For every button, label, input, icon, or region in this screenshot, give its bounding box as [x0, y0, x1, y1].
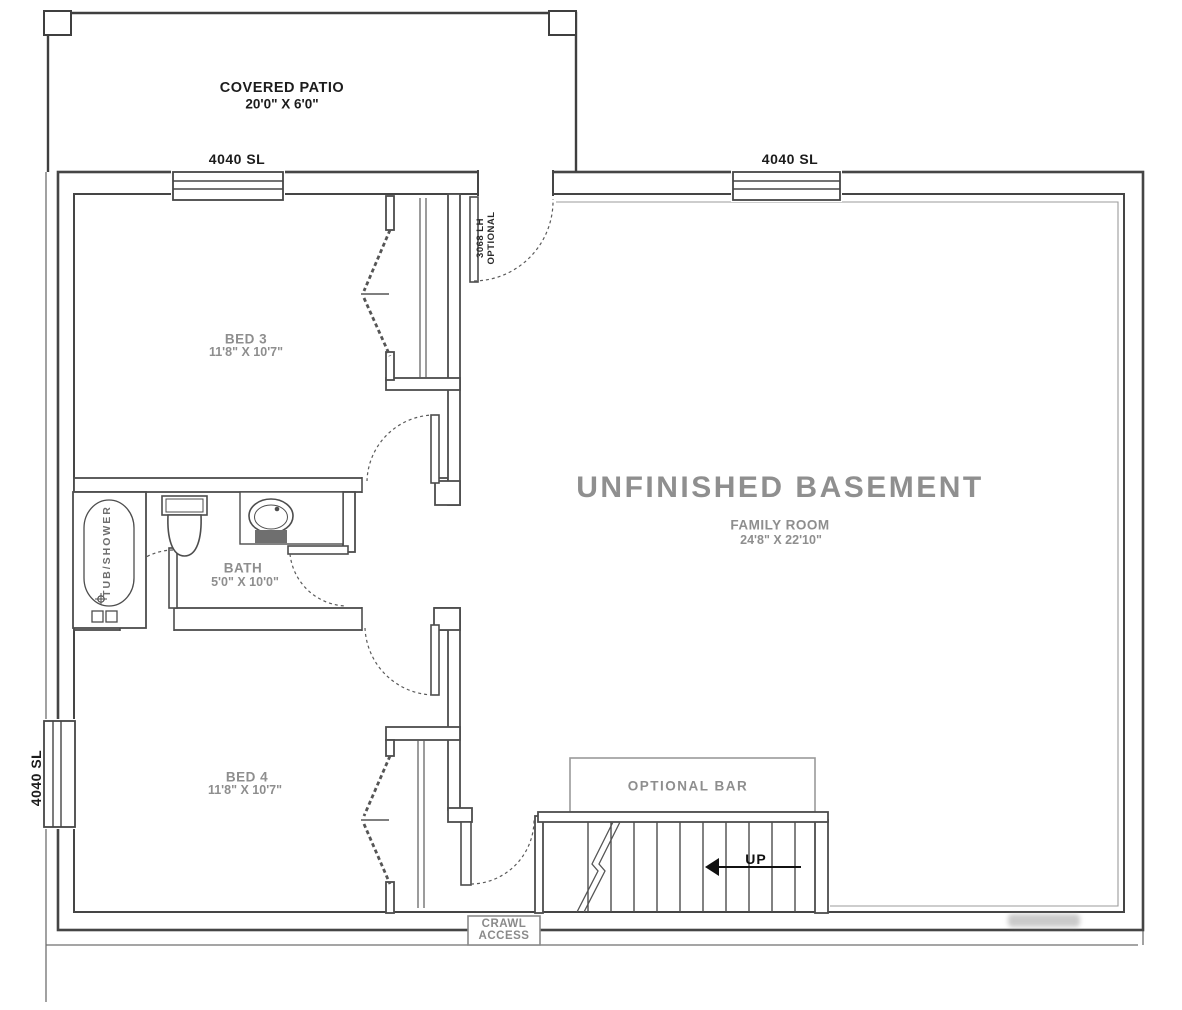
understair-door	[461, 819, 534, 885]
bed3-door	[367, 415, 439, 483]
optional-bar-label: OPTIONAL BAR	[628, 778, 749, 793]
bed4-dims: 11'8" X 10'7"	[208, 783, 282, 797]
toilet	[162, 496, 207, 556]
crawl-access-line1: CRAWL	[479, 918, 530, 930]
window-left	[42, 719, 78, 829]
closet-rods	[418, 198, 426, 908]
family-room-label: FAMILY ROOM	[730, 517, 829, 532]
bed3-closet-bifold	[361, 230, 390, 356]
bath-dims: 5'0" X 10'0"	[211, 575, 279, 589]
bath-door-right	[288, 546, 348, 606]
bed4-door	[365, 625, 439, 695]
crawl-access-label: CRAWL ACCESS	[479, 918, 530, 942]
entry-door-label-line2: OPTIONAL	[487, 211, 498, 264]
family-room-dims: 24'8" X 22'10"	[740, 533, 822, 547]
entry-door-label: 3068 LH OPTIONAL	[476, 211, 498, 264]
window-label-left: 4040 SL	[29, 750, 45, 806]
bed4-closet-top-wall	[386, 727, 460, 740]
up-label: UP	[745, 852, 766, 868]
bed3-dims: 11'8" X 10'7"	[209, 345, 283, 359]
bath-label: BATH	[224, 560, 263, 575]
crawl-access-line2: ACCESS	[479, 930, 530, 942]
stairs	[538, 812, 828, 912]
covered-patio-dims: 20'0" X 6'0"	[245, 96, 318, 111]
window-label-top-left: 4040 SL	[209, 152, 265, 168]
floor-plan-linework	[0, 0, 1182, 1010]
entry-door-opening	[477, 168, 554, 198]
patio-post-right	[549, 11, 576, 35]
bed4-closet-bifold	[361, 756, 390, 884]
sink-vanity	[240, 492, 343, 544]
floor-plan: COVERED PATIO 20'0" X 6'0" 4040 SL 4040 …	[0, 0, 1182, 1010]
basement-title: UNFINISHED BASEMENT	[576, 471, 984, 505]
window-label-top-right: 4040 SL	[762, 152, 818, 168]
bed3-closet-bottom-wall	[386, 378, 460, 390]
window-top-left	[171, 168, 285, 202]
stair-break-line	[577, 822, 620, 912]
covered-patio-label: COVERED PATIO	[220, 80, 344, 96]
window-top-right	[731, 168, 842, 202]
sink-base	[255, 530, 287, 543]
watermark	[1008, 914, 1080, 927]
tub-shower-label: TUB/SHOWER	[102, 505, 114, 597]
patio-post-left	[44, 11, 71, 35]
